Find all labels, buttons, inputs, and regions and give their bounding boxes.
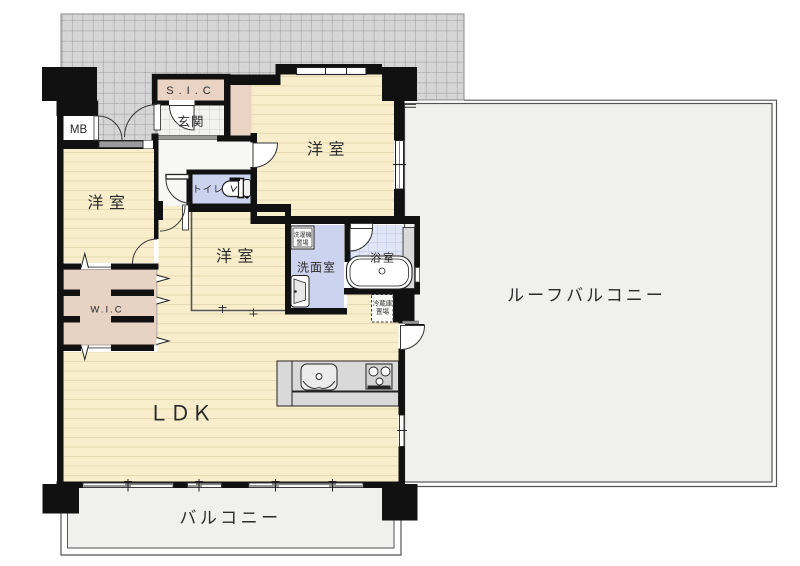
svg-text:ルーフバルコニー: ルーフバルコニー [507,286,666,305]
svg-text:洋室: 洋室 [87,194,130,212]
svg-text:洋室: 洋室 [307,141,350,159]
svg-text:トイレ: トイレ [192,185,224,196]
svg-text:玄関: 玄関 [177,114,204,129]
svg-text:置場: 置場 [376,307,390,316]
svg-text:浴室: 浴室 [370,251,396,265]
svg-text:MB: MB [70,124,88,136]
svg-text:S.I.C: S.I.C [166,85,215,97]
svg-text:W.I.C: W.I.C [90,305,123,316]
svg-text:ＬＤＫ: ＬＤＫ [148,403,213,426]
svg-text:洋室: 洋室 [216,248,259,266]
svg-text:洗面室: 洗面室 [297,260,336,275]
svg-text:バルコニー: バルコニー [179,509,281,528]
svg-text:冷蔵庫: 冷蔵庫 [373,299,393,308]
svg-text:置場: 置場 [296,239,308,247]
svg-text:洗濯機: 洗濯機 [293,231,311,239]
